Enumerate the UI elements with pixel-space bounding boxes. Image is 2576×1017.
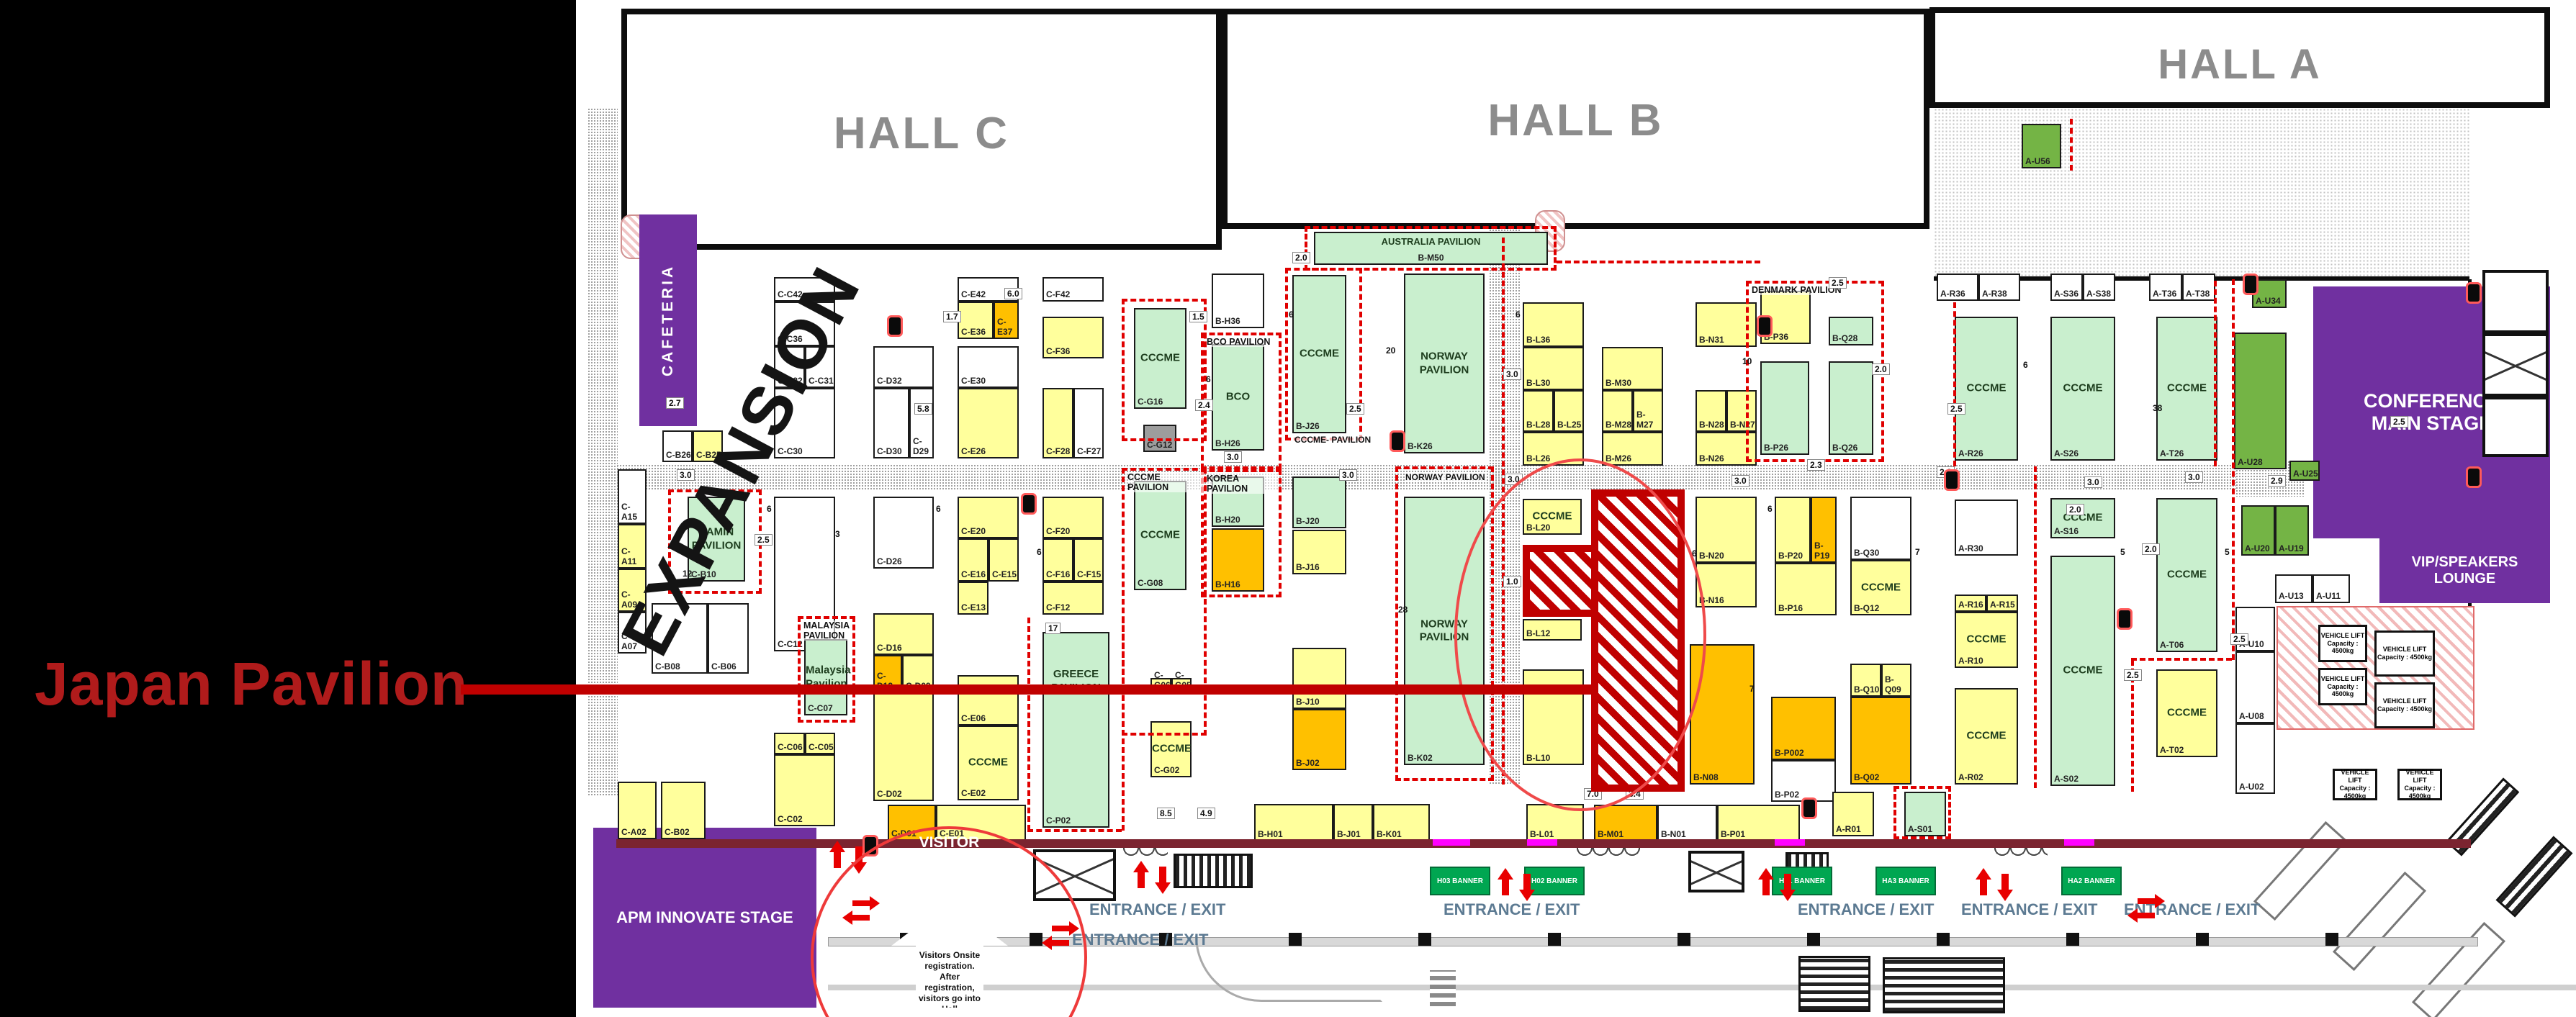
booth-code-label: A-R01 <box>1836 824 1861 834</box>
booth-code-label: A-S02 <box>2054 774 2079 784</box>
booth-code-label: A-R02 <box>1958 772 1983 782</box>
booth-code-label: B-J16 <box>1296 562 1320 572</box>
booth: B-Q30 <box>1850 497 1911 560</box>
dimension-number: 3 <box>835 529 840 539</box>
booth-code-label: C-C05 <box>809 742 834 752</box>
booth-code-label: B-P02 <box>1775 790 1799 800</box>
booth-code-label: A-U28 <box>2238 457 2263 467</box>
booth-code-label: A-T02 <box>2160 745 2184 755</box>
booth-code-label: A-S26 <box>2054 448 2079 458</box>
two-way-arrows-icon <box>2127 894 2165 923</box>
booth-code-label: A-U19 <box>2279 543 2304 553</box>
dimension-chip: 2.3 <box>1807 459 1825 471</box>
booth-code-label: A-T06 <box>2160 640 2184 650</box>
dimension-number: 6 <box>1289 309 1294 320</box>
dimension-chip: 2.5 <box>1829 277 1847 289</box>
pavilion-boundary-line <box>1027 829 1122 832</box>
booth-code-label: C-D32 <box>877 376 902 386</box>
booth: CCCME A-R26 <box>1955 317 2018 461</box>
booth: C-F15 <box>1073 538 1104 582</box>
hall-banner: H03 BANNER <box>1430 867 1490 895</box>
booth-code-label: B-M27 <box>1636 410 1662 430</box>
booth: C-E26 <box>958 388 1019 458</box>
booth-code-label: B-P002 <box>1775 748 1804 758</box>
dimension-number: 6 <box>1206 374 1211 384</box>
booth-code-label: A-S38 <box>2086 289 2111 299</box>
diagonal-structure <box>2333 872 2426 971</box>
dimension-chip: 2.0 <box>1872 363 1890 375</box>
booth: A-T36 <box>2149 274 2182 301</box>
column-marker-icon <box>1801 797 1817 819</box>
walkway-door <box>1807 933 1820 946</box>
booth: CCCME A-S02 <box>2050 556 2115 786</box>
walkway-door <box>1937 933 1950 946</box>
booth-code-label: A-U11 <box>2316 591 2341 601</box>
booth: B-P19 <box>1811 497 1837 563</box>
purple-zone-label: VIP/SPEAKERS LOUNGE <box>2412 554 2518 587</box>
booth: C-A02 <box>618 782 657 839</box>
dimension-chip: 2.5 <box>1346 403 1364 415</box>
booth: CCCME C-E02 <box>958 726 1019 800</box>
dimension-chip: 8.5 <box>1157 808 1175 819</box>
dimension-number: 6 <box>2023 360 2028 370</box>
booth-center-label: NORWAY PAVILION <box>1405 350 1483 377</box>
booth-code-label: B-P20 <box>1778 551 1803 561</box>
booth: C-B06 <box>708 603 749 674</box>
walkway-door <box>1289 933 1302 946</box>
booth-code-label: A-R10 <box>1958 656 1983 666</box>
booth: C-D26 <box>873 497 934 569</box>
dimension-chip: 2.9 <box>2268 475 2286 487</box>
booth-code-label: C-E36 <box>961 327 986 337</box>
booth-code-label: C-E30 <box>961 376 986 386</box>
booth-code-label: B-N01 <box>1661 829 1686 839</box>
purple-zone: CAFETERIA <box>639 214 697 426</box>
booth-code-label: B-N31 <box>1699 335 1724 345</box>
dimension-number: 6 <box>1767 504 1773 514</box>
pavilion-outline: CCCME PAVILION <box>1122 468 1207 736</box>
booth: A-R38 <box>1978 274 2020 301</box>
booth: B-J02 <box>1292 709 1346 770</box>
hall-banner: HA2 BANNER <box>2061 867 2122 895</box>
booth-code-label: C-D30 <box>877 446 902 456</box>
booth-code-label: A-U02 <box>2239 782 2264 792</box>
pavilion-outline-label: CCCME PAVILION <box>1127 472 1204 492</box>
banner-bar <box>1433 839 1470 846</box>
dimension-chip: 3.0 <box>2185 471 2203 483</box>
dimension-chip: 2.5 <box>2124 669 2142 681</box>
service-room <box>2482 397 2549 457</box>
booth: B-P16 <box>1775 563 1837 615</box>
booth: B-H36 <box>1212 274 1264 328</box>
booth: B-N16 <box>1695 563 1757 607</box>
pavilion-boundary-line <box>1557 261 1760 263</box>
dimension-chip: 3.0 <box>1503 369 1521 380</box>
column-marker-icon <box>1944 469 1960 491</box>
pavilion-boundary-line <box>1122 618 1125 831</box>
booth-code-label: C-F27 <box>1077 446 1101 456</box>
dimension-chip: 2.0 <box>1292 252 1310 263</box>
dimension-number: 5 <box>2225 547 2230 557</box>
booth: C-F28 <box>1042 388 1073 458</box>
booth: B-P02 <box>1771 760 1836 802</box>
pavilion-outline-label: KOREA PAVILION <box>1207 474 1279 494</box>
booth-code-label: C-E20 <box>961 526 986 536</box>
booth: B-M30 <box>1602 347 1663 390</box>
booth-center-label: CCCME <box>1152 743 1190 756</box>
vehicle-lift: VEHICLE LIFT Capacity : 4500kg <box>2318 625 2367 662</box>
booth-center-label: CCCME <box>1956 633 2017 647</box>
booth-code-label: A-U20 <box>2245 543 2270 553</box>
walkway-door <box>1548 933 1561 946</box>
dimension-number: 6 <box>767 504 772 514</box>
booth: C-D29 <box>909 388 934 458</box>
updown-arrows-icon <box>1974 868 2014 901</box>
booth-code-label: C-C06 <box>778 742 803 752</box>
booth-code-label: A-R36 <box>1940 289 1965 299</box>
booth: B-P01 <box>1717 805 1800 841</box>
booth: B-J10 <box>1292 648 1346 709</box>
entrance-exit-label: ENTRANCE / EXIT <box>1961 900 2097 919</box>
dimension-number: 5 <box>2120 547 2125 557</box>
booth: C-D30 <box>873 388 909 458</box>
pavilion-boundary-line <box>2214 281 2217 466</box>
booth-code-label: B-N20 <box>1699 551 1724 561</box>
dimension-number: 7 <box>1915 547 1920 557</box>
booth-code-label: A-U13 <box>2279 591 2304 601</box>
booth-code-label: B-P19 <box>1814 541 1835 561</box>
hallA-hatch-area <box>1934 108 2469 276</box>
updown-arrows-icon <box>1132 861 1172 894</box>
column-marker-icon <box>887 315 903 337</box>
booth-code-label: C-E16 <box>961 569 986 579</box>
booth: C-E37 <box>994 302 1019 339</box>
booth-code-label: A-R15 <box>1990 600 2015 610</box>
booth-code-label: C-E42 <box>961 289 986 299</box>
booth-code-label: C-F16 <box>1046 569 1070 579</box>
purple-zone-label: CONFERENCE MAIN STAGE <box>2364 390 2500 435</box>
japan-pavilion-label: Japan Pavilion <box>35 649 468 719</box>
booth: C-E20 <box>958 497 1019 538</box>
booth: B-Q10 <box>1850 664 1881 697</box>
purple-zone: APM INNOVATE STAGE <box>593 828 816 1008</box>
booth-code-label: B-N26 <box>1699 453 1724 464</box>
booth-code-label: C-E02 <box>961 788 986 798</box>
service-room <box>2482 270 2549 333</box>
walkway-door <box>1677 933 1690 946</box>
dimension-number: 6 <box>936 504 941 514</box>
booth-code-label: A-S16 <box>2054 526 2079 536</box>
booth: CCCME A-R02 <box>1955 688 2018 785</box>
diagonal-structure <box>2253 821 2347 921</box>
purple-zone-label: CAFETERIA <box>659 264 677 376</box>
dimension-chip: 2.0 <box>2066 504 2084 515</box>
booth: B-J20 <box>1292 476 1346 528</box>
booth: B-L30 <box>1523 347 1584 390</box>
booth-code-label: C-E06 <box>961 713 986 723</box>
booth: B-J16 <box>1292 530 1346 574</box>
booth-code-label: B-L01 <box>1530 829 1554 839</box>
pavilion-outline: DENMARK PAVILION <box>1746 281 1884 462</box>
banner-bar <box>2064 839 2094 846</box>
booth: A-U25 <box>2289 461 2320 481</box>
booth-code-label: B-Q09 <box>1885 674 1910 695</box>
booth: A-U19 <box>2275 505 2309 556</box>
booth: CCCME A-T06 <box>2156 498 2217 652</box>
pavilion-outline-label: MALAYSIA PAVILION <box>803 620 852 641</box>
booth: CCCME A-T02 <box>2156 669 2217 757</box>
booth-code-label: B-L26 <box>1526 453 1550 464</box>
booth-code-label: B-H01 <box>1258 829 1283 839</box>
booth: C-D02 <box>873 693 934 801</box>
booth: B-Q09 <box>1881 664 1911 697</box>
vehicle-lift: VEHICLE LIFT Capacity : 4500kg <box>2318 668 2367 705</box>
walkway-door <box>2325 933 2338 946</box>
booth: CCCME A-S26 <box>2050 317 2115 461</box>
booth: NORWAY PAVILION B-K26 <box>1404 274 1485 453</box>
booth: B-N20 <box>1695 497 1757 563</box>
diagonal-structure <box>2412 922 2505 1017</box>
pavilion-boundary-line <box>1027 618 1030 831</box>
pavilion-outline <box>1893 786 1951 839</box>
booth: C-E15 <box>988 538 1019 582</box>
booth-code-label: B-M01 <box>1598 829 1623 839</box>
dimension-number: 6 <box>1037 547 1042 557</box>
booth-code-label: A-S36 <box>2054 289 2079 299</box>
pavilion-boundary-line <box>2070 119 2073 171</box>
column-marker-icon <box>1390 430 1405 452</box>
booth-code-label: C-D26 <box>877 556 902 566</box>
booth-code-label: C-E13 <box>961 602 986 613</box>
booth: C-A15 <box>618 469 647 524</box>
booth-center-label: CCCME <box>1852 581 1910 595</box>
booth: B-M27 <box>1633 390 1663 432</box>
dimension-chip: 5.8 <box>914 403 932 415</box>
hall-title: HALL B <box>1228 95 1924 146</box>
booth: B-Q02 <box>1850 697 1911 785</box>
booth-center-label: CCCME <box>2158 707 2216 720</box>
booth: CCCME B-Q12 <box>1850 560 1911 615</box>
booth-center-label: CCCME <box>1956 382 2017 396</box>
booth-code-label: C-E26 <box>961 446 986 456</box>
booth: A-S38 <box>2083 274 2115 301</box>
pavilion-outline: BCO PAVILION <box>1201 333 1282 469</box>
booth: CCCME A-R10 <box>1955 612 2018 668</box>
dimension-chip: 3.0 <box>1339 469 1357 481</box>
booth-code-label: B-M28 <box>1606 420 1631 430</box>
column-marker-icon <box>2243 274 2258 295</box>
booth-center-label: CCCME <box>959 756 1017 770</box>
dimension-chip: 2.5 <box>2390 416 2408 428</box>
japan-pavilion-ellipse <box>1454 458 1706 811</box>
vehicle-lift: VEHICLE LIFT Capacity : 4500kg <box>2374 682 2435 728</box>
booth: B-N28 <box>1695 390 1726 432</box>
booth: A-U11 <box>2312 574 2350 603</box>
booth-code-label: A-T36 <box>2153 289 2176 299</box>
dimension-chip: 2.7 <box>666 397 684 409</box>
dimension-chip: 3.0 <box>1224 451 1242 463</box>
hall-box: HALL B <box>1222 9 1929 229</box>
booth: C-C06 <box>774 733 805 754</box>
left-black-sidebar: Japan Pavilion <box>0 0 576 1017</box>
booth: A-U08 <box>2235 651 2275 723</box>
booth: A-R01 <box>1832 792 1874 836</box>
booth-code-label: B-J02 <box>1296 758 1320 768</box>
updown-arrows-icon <box>1757 868 1797 901</box>
booth-code-label: A-U34 <box>2256 296 2281 306</box>
dimension-number: 28 <box>1398 605 1408 615</box>
service-room <box>2482 333 2549 397</box>
dimension-chip: 3.0 <box>1731 475 1749 487</box>
booth-code-label: C-F15 <box>1077 569 1101 579</box>
pavilion-boundary-line <box>1953 302 1956 466</box>
booth-code-label: B-P01 <box>1721 829 1745 839</box>
booth: A-U56 <box>2022 124 2061 168</box>
floorplan-screenshot: Japan Pavilion HALL C HALL B HALL A EXPA… <box>0 0 2576 1017</box>
banner-bar <box>1775 839 1805 846</box>
purple-zone-label: APM INNOVATE STAGE <box>616 908 793 927</box>
booth: C-C05 <box>805 733 835 754</box>
booth-code-label: A-R30 <box>1958 543 1983 553</box>
booth: C-D16 <box>873 613 934 655</box>
booth-code-label: C-B06 <box>711 661 737 672</box>
dimension-number: 6 <box>1516 309 1521 320</box>
booth-code-label: B-J10 <box>1296 697 1320 707</box>
dimension-chip: 1.7 <box>943 311 961 322</box>
booth-code-label: A-R16 <box>1958 600 1983 610</box>
booth: C-E30 <box>958 346 1019 388</box>
booth-code-label: B-L36 <box>1526 335 1550 345</box>
booth: B-P002 <box>1771 697 1836 760</box>
booth-code-label: C-F20 <box>1046 526 1070 536</box>
dimension-chip: 6.0 <box>1004 288 1022 299</box>
booth-code-label: A-T26 <box>2160 448 2184 458</box>
pavilion-outline-label: BCO PAVILION <box>1207 337 1270 347</box>
dimension-number: 10 <box>1742 356 1752 366</box>
column-marker-icon <box>1021 493 1037 515</box>
hall-title: HALL A <box>1935 40 2544 89</box>
booth: A-U02 <box>2235 723 2275 794</box>
booth-code-label: B-Q10 <box>1854 684 1879 695</box>
dimension-chip: 4.9 <box>1197 808 1215 819</box>
pavilion-boundary-line <box>2131 658 2232 661</box>
elevator-icon <box>1688 851 1744 892</box>
booth-code-label: B-J20 <box>1296 516 1320 526</box>
booth-code-label: C-B02 <box>665 827 690 837</box>
pavilion-outline: KOREA PAVILION <box>1201 469 1282 597</box>
vehicle-lift: VEHICLE LIFT Capacity : 4500kg <box>2397 769 2442 800</box>
booth: A-R30 <box>1955 500 2018 556</box>
booth-code-label: C-F36 <box>1046 346 1070 356</box>
booth-code-label: C-A15 <box>621 502 645 522</box>
dimension-chip: 1.5 <box>1189 311 1207 322</box>
dimension-chip: 2.4 <box>1195 399 1213 411</box>
booth: C-E06 <box>958 675 1019 726</box>
booth: B-L25 <box>1554 390 1584 432</box>
hall-banner: HA3 BANNER <box>1875 867 1936 895</box>
booth-code-label: B-P16 <box>1778 603 1803 613</box>
booth: C-E13 <box>958 582 988 615</box>
booth-center-label: CCCME <box>2052 664 2114 678</box>
walkway-door <box>2066 933 2079 946</box>
booth-code-label: C-D16 <box>877 643 902 653</box>
pavilion-outline: MALAYSIA PAVILION <box>798 616 855 723</box>
dimension-chip: 2.5 <box>2230 633 2248 645</box>
vehicle-lift: VEHICLE LIFT Capacity : 4500kg <box>2333 769 2377 800</box>
pavilion-boundary-line <box>2232 279 2235 660</box>
booth: C-F16 <box>1042 538 1073 582</box>
booth-code-label: C-D29 <box>913 436 932 456</box>
booth-code-label: B-Q02 <box>1854 772 1879 782</box>
column-marker-icon <box>2466 282 2482 304</box>
booth: A-U13 <box>2275 574 2312 603</box>
banner-bar <box>1527 839 1557 846</box>
pavilion-outline <box>1305 226 1557 271</box>
pavilion-boundary-line <box>2034 466 2037 788</box>
booth-code-label: C-F12 <box>1046 602 1070 613</box>
escalator-icon <box>1798 956 1870 1012</box>
aisle-label: CCCME- PAVILION <box>1294 435 1371 445</box>
booth-code-label: C-D02 <box>877 789 902 799</box>
booth-code-label: B-L25 <box>1557 420 1581 430</box>
dimension-number: 7 <box>1749 684 1755 694</box>
booth-code-label: B-Q12 <box>1854 603 1879 613</box>
dimension-chip: 17 <box>1045 623 1060 634</box>
booth-code-label: A-U25 <box>2293 469 2318 479</box>
booth-code-label: C-E15 <box>992 569 1017 579</box>
column-marker-icon <box>2117 608 2133 630</box>
booth-center-label: CCCME <box>2158 382 2216 396</box>
booth-code-label: C-G12 <box>1147 440 1172 450</box>
booth: C-F20 <box>1042 497 1104 538</box>
purple-zone: VIP/SPEAKERS LOUNGE <box>2379 538 2550 603</box>
booth: C-D32 <box>873 346 934 388</box>
booth-code-label: C-G02 <box>1154 765 1179 775</box>
booth-code-label: B-N28 <box>1699 420 1724 430</box>
booth: B-M26 <box>1602 432 1663 466</box>
booth-code-label: C-C02 <box>778 814 803 824</box>
booth-code-label: C-P02 <box>1046 815 1071 826</box>
booth: B-L28 <box>1523 390 1554 432</box>
booth: B-P20 <box>1775 497 1811 563</box>
booth-code-label: A-R38 <box>1982 289 2007 299</box>
booth-code-label: B-M26 <box>1606 453 1631 464</box>
booth-code-label: B-J01 <box>1337 829 1361 839</box>
dimension-chip: 3.0 <box>2084 476 2102 488</box>
booth-center-label: CCCME <box>2052 382 2114 396</box>
booth-code-label: B-L28 <box>1526 420 1550 430</box>
service-dock <box>1883 957 2005 1013</box>
walkway-door <box>2196 933 2209 946</box>
booth: B-M01 <box>1594 805 1657 841</box>
booth-code-label: B-M30 <box>1606 378 1631 388</box>
booth: C-E36 <box>958 302 994 339</box>
booth-code-label: B-K01 <box>1377 829 1402 839</box>
booth: C-E16 <box>958 538 988 582</box>
entrance-exit-label: ENTRANCE / EXIT <box>1072 931 1208 949</box>
dimension-number: 38 <box>2153 403 2162 413</box>
booth: A-R16 <box>1955 595 1986 612</box>
pavilion-outline <box>1285 268 1362 440</box>
booth: B-L36 <box>1523 302 1584 347</box>
booth-center-label: CCCME <box>2158 569 2216 582</box>
booth: A-R36 <box>1937 274 1978 301</box>
booth-code-label: A-T38 <box>2186 289 2210 299</box>
booth-code-label: C-B26 <box>666 450 691 460</box>
booth: C-C02 <box>774 754 835 826</box>
diagonal-structure <box>2495 836 2572 917</box>
booth: C-F42 <box>1042 277 1104 302</box>
